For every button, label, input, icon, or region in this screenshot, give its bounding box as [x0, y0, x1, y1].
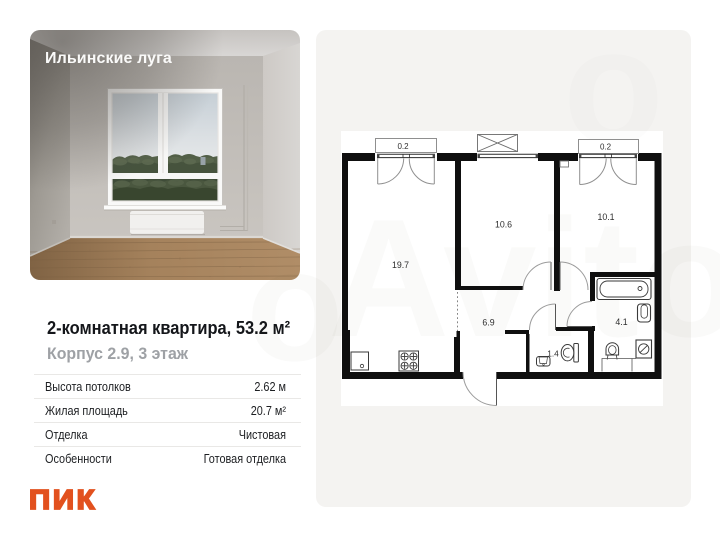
- svg-text:1.4: 1.4: [547, 349, 559, 359]
- svg-text:6.9: 6.9: [482, 318, 494, 328]
- svg-text:0.2: 0.2: [397, 142, 409, 151]
- svg-text:4.1: 4.1: [615, 317, 627, 327]
- svg-text:10.1: 10.1: [597, 212, 614, 222]
- svg-text:10.6: 10.6: [495, 220, 512, 230]
- svg-text:19.7: 19.7: [392, 260, 409, 270]
- svg-text:0.2: 0.2: [600, 143, 612, 152]
